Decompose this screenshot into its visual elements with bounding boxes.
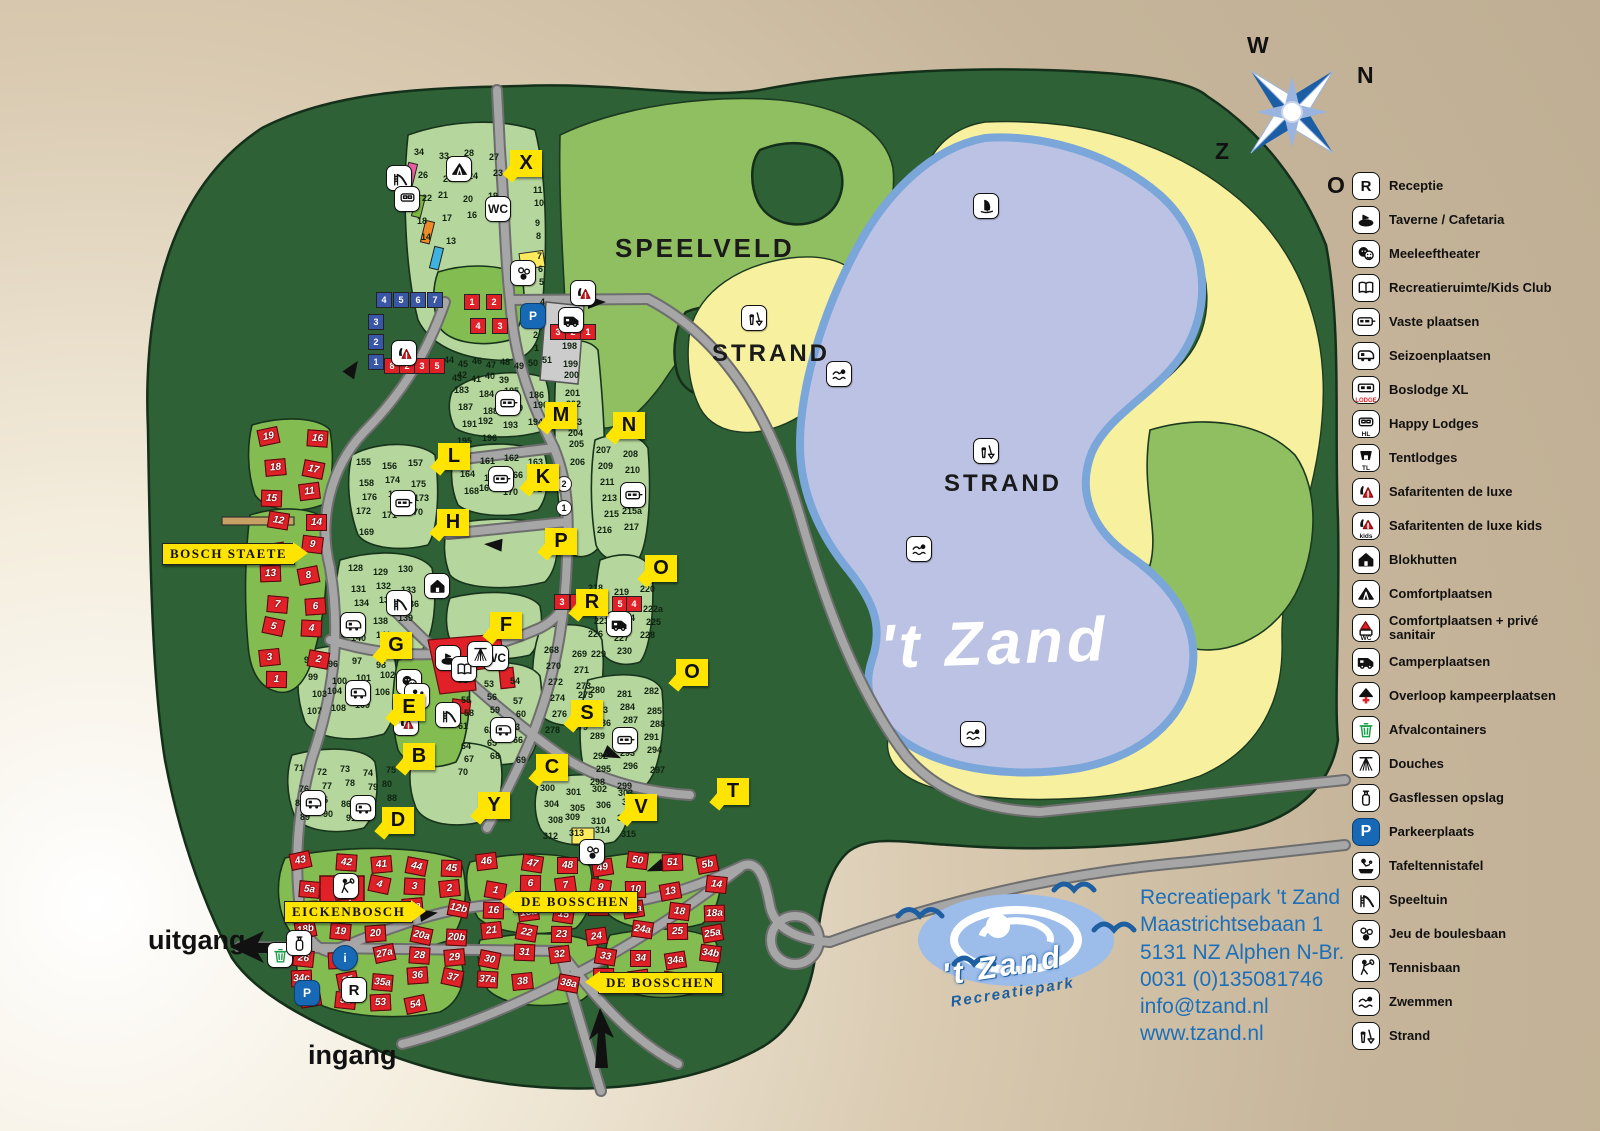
plot-number: 191 [462, 419, 477, 429]
plot-number: 10 [534, 198, 544, 208]
plot-number: 106 [375, 687, 390, 697]
plot-number: 169 [359, 527, 374, 537]
plot-number: 284 [620, 702, 635, 712]
area-sign: BOSCH STAETE [162, 543, 295, 565]
camperplaats-icon [606, 611, 632, 637]
legend-item: Zwemmen [1352, 988, 1597, 1016]
plot-number: 228 [640, 630, 655, 640]
plot-number: 17 [442, 213, 452, 223]
sign-arrow-icon [293, 542, 308, 564]
safaritent-icon [391, 340, 417, 366]
bungalow-plot: 23 [551, 926, 572, 943]
plot-number: 58 [464, 708, 474, 718]
bungalow-plot: 47 [521, 853, 544, 873]
boslodge-xl-icon: LODGE [1352, 376, 1380, 404]
bungalow-plot: 30 [478, 949, 502, 970]
contact-line: 0031 (0)135081746 [1140, 966, 1344, 993]
bungalow-plot: 4 [301, 619, 323, 637]
route-marker-m: M [545, 402, 577, 429]
vaste-plaatsen-icon [495, 390, 521, 416]
legend-icon-tag: LODGE [1353, 398, 1379, 404]
plot-number: 6 [538, 264, 543, 274]
plot-number: 97 [352, 656, 362, 666]
plot-number: 68 [490, 751, 500, 761]
windsurf-icon [973, 193, 999, 219]
legend-item: kidsSafaritenten de luxe kids [1352, 512, 1597, 540]
plot-number: 2 [533, 330, 538, 340]
mini-plot: 3 [368, 314, 384, 330]
bungalow-plot: 31 [514, 944, 536, 962]
plot-number: 184 [479, 389, 494, 399]
plot-number: 289 [590, 731, 605, 741]
plot-number: 173 [414, 493, 429, 503]
jeu-de-boules-icon [510, 260, 536, 286]
bungalow-plot: 5a [298, 880, 320, 899]
plot-number: 22 [422, 193, 432, 203]
plot-number: 44 [444, 355, 454, 365]
plot-number: 174 [385, 475, 400, 485]
afvalcontainer-icon [1352, 716, 1380, 744]
plot-number: 96 [328, 659, 338, 669]
compass-south: Z [1215, 138, 1229, 165]
route-marker-e: E [393, 694, 425, 721]
bungalow-plot: 20 [364, 924, 386, 942]
seizoenplaatsen-icon [300, 790, 326, 816]
bungalow-plot: 18 [264, 458, 286, 477]
plot-number: 208 [623, 449, 638, 459]
legend-item-label: Comfortplaatsen [1389, 587, 1492, 601]
plot-number: 272 [548, 677, 563, 687]
strand-icon [741, 305, 767, 331]
legend-item: Afvalcontainers [1352, 716, 1597, 744]
bungalow-plot: 13 [260, 565, 282, 583]
plot-number: 313 [569, 828, 584, 838]
plot-number: 57 [513, 696, 523, 706]
bungalow-plot: 27a [372, 943, 396, 964]
plot-number: 295 [596, 764, 611, 774]
zwemmen-icon [960, 721, 986, 747]
legend-item-label: Gasflessen opslag [1389, 791, 1504, 805]
bungalow-plot: 37a [477, 970, 499, 988]
plot-number: 187 [458, 402, 473, 412]
bungalow-plot: 6 [304, 597, 326, 615]
bungalow-plot: 4 [367, 874, 391, 895]
legend-item-label: Tafeltennistafel [1389, 859, 1483, 873]
plot-number: 225 [646, 617, 661, 627]
strand-icon [1352, 1022, 1380, 1050]
contact-line: 5131 NZ Alphen N-Br. [1140, 939, 1344, 966]
plot-number: 168 [464, 486, 479, 496]
legend-item-label: Strand [1389, 1029, 1430, 1043]
bungalow-plot: 25a [701, 923, 725, 943]
legend-item: Gasflessen opslag [1352, 784, 1597, 812]
legend-item: Blokhutten [1352, 546, 1597, 574]
plot-number: 278 [545, 725, 560, 735]
seizoenplaatsen-icon [490, 717, 516, 743]
area-sign-text: BOSCH STAETE [170, 546, 287, 561]
happy-lodges-icon: HL [1352, 410, 1380, 438]
bungalow-plot: 14 [306, 514, 327, 531]
vaste-plaatsen-icon [612, 727, 638, 753]
plot-number: 5 [539, 277, 544, 287]
plot-number: 60 [516, 709, 526, 719]
plot-number: 1 [534, 343, 539, 353]
plot-number: 53 [484, 679, 494, 689]
plot-number: 287 [623, 715, 638, 725]
mini-plot: 7 [427, 292, 443, 308]
legend-item-label: Recreatieruimte/Kids Club [1389, 281, 1552, 295]
plot-number: 226 [588, 629, 603, 639]
legend-item-label: Safaritenten de luxe [1389, 485, 1513, 499]
bungalow-plot: 20a [409, 925, 433, 946]
compass-north: N [1357, 62, 1374, 89]
legend-item: Douches [1352, 750, 1597, 778]
bungalow-plot: 44 [405, 856, 429, 877]
plot-number: 282 [644, 686, 659, 696]
bungalow-plot: 17 [302, 459, 326, 480]
plot-number: 213 [602, 493, 617, 503]
plot-number: 297 [650, 765, 665, 775]
route-marker-c: C [536, 754, 568, 781]
plot-number: 196 [482, 433, 497, 443]
bungalow-plot: 41 [370, 855, 392, 874]
legend-item: WCComfortplaatsen + privé sanitair [1352, 614, 1597, 642]
plot-number: 268 [544, 645, 559, 655]
entrance-label: ingang [308, 1040, 397, 1071]
bungalow-plot: 25 [667, 923, 688, 940]
reception-icon: R [341, 977, 367, 1003]
plot-number: 20 [463, 194, 473, 204]
plot-number: 198 [562, 341, 577, 351]
plot-number: 104 [327, 686, 342, 696]
jeu-de-boules-icon [1352, 920, 1380, 948]
bungalow-plot: 14 [705, 875, 728, 894]
bungalow-plot: 36 [406, 966, 428, 984]
plot-number: 55 [461, 695, 471, 705]
plot-number: 131 [351, 584, 366, 594]
bungalow-plot: 34 [630, 950, 651, 967]
strand-west-label: STRAND [712, 340, 830, 368]
legend-icon-tag: TL [1353, 466, 1379, 473]
plot-number: 201 [565, 388, 580, 398]
park-map-page: { "page_title": "Plattegrond Recreatiepa… [0, 0, 1600, 1131]
plot-number: 46 [472, 356, 482, 366]
plot-number: 71 [294, 763, 304, 773]
plot-number: 14 [421, 232, 431, 242]
legend-item: Jeu de boulesbaan [1352, 920, 1597, 948]
bungalow-plot: 54 [403, 994, 427, 1015]
plot-number: 315 [621, 829, 636, 839]
plot-number: 23 [493, 168, 503, 178]
bungalow-plot: 38a [557, 973, 581, 993]
legend-item: RReceptie [1352, 172, 1597, 200]
plot-number: 269 [572, 649, 587, 659]
plot-number: 230 [617, 646, 632, 656]
plot-number: 288 [650, 719, 665, 729]
tentlodges-icon: TL [1352, 444, 1380, 472]
plot-number: 79 [368, 782, 378, 792]
plot-number: 48 [500, 357, 510, 367]
legend-icon-tag: HL [1353, 432, 1379, 439]
area-sign-text: DE BOSSCHEN [521, 894, 630, 909]
bungalow-plot: 43 [288, 850, 312, 871]
plot-number: 211 [600, 477, 615, 487]
plot-number: 199 [563, 359, 578, 369]
reception-icon: R [1352, 172, 1380, 200]
compass-east: O [1327, 172, 1345, 199]
bungalow-plot: 50 [626, 851, 649, 870]
bungalow-plot: 24 [585, 927, 608, 947]
plot-number: 280 [590, 685, 605, 695]
legend-item: HLHappy Lodges [1352, 410, 1597, 438]
bungalow-plot: 2 [307, 649, 331, 669]
comfortplaats-icon [446, 156, 472, 182]
mini-plot: 4 [626, 596, 642, 612]
plot-number: 138 [373, 616, 388, 626]
vaste-plaatsen-icon [390, 490, 416, 516]
speeltuin-icon [1352, 886, 1380, 914]
plot-number: 50 [528, 358, 538, 368]
legend-icon-tag: kids [1353, 534, 1379, 541]
speelveld-label: SPEELVELD [615, 233, 795, 264]
strand-icon [973, 438, 999, 464]
legend-item-label: Tennisbaan [1389, 961, 1460, 975]
bungalow-plot: 38 [511, 972, 534, 991]
bungalow-plot: 45 [441, 860, 463, 878]
plot-number: 11 [533, 185, 543, 195]
plot-number: 172 [356, 506, 371, 516]
mini-plot: 1 [368, 354, 384, 370]
legend-item: Comfortplaatsen [1352, 580, 1597, 608]
plot-number: 192 [478, 416, 493, 426]
plot-number: 70 [458, 767, 468, 777]
plot-number: 40 [485, 371, 495, 381]
plot-number: 47 [486, 360, 496, 370]
douche-icon [467, 641, 493, 667]
legend-item-label: Vaste plaatsen [1389, 315, 1479, 329]
plot-number: 314 [595, 825, 610, 835]
speeltuin-icon [386, 590, 412, 616]
bungalow-plot: 18 [668, 902, 691, 921]
area-sign-text: DE BOSSCHEN [606, 975, 715, 990]
plot-number: 49 [514, 361, 524, 371]
safaritent-icon [1352, 478, 1380, 506]
plot-number: 134 [354, 598, 369, 608]
parkeer-icon: P [1352, 818, 1380, 846]
safaritent-kids-icon: kids [1352, 512, 1380, 540]
route-marker-b: B [403, 743, 435, 770]
plot-number: 56 [487, 692, 497, 702]
legend-item: Overloop kampeerplaatsen [1352, 682, 1597, 710]
plot-number: 157 [408, 458, 423, 468]
jeu-de-boules-icon [579, 839, 605, 865]
bungalow-plot: 19 [329, 922, 351, 941]
route-marker-d: D [382, 807, 414, 834]
plot-number: 161 [480, 456, 495, 466]
route-marker-o: O [676, 659, 708, 686]
bungalow-plot: 35a [371, 973, 393, 992]
exit-label: uitgang [148, 925, 245, 956]
parkeer-icon: P [294, 980, 320, 1006]
plot-number: 129 [373, 567, 388, 577]
mini-plot: 1 [464, 294, 480, 310]
seizoenplaatsen-icon [345, 680, 371, 706]
legend-item-label: Taverne / Cafetaria [1389, 213, 1504, 227]
route-marker-s: S [571, 700, 603, 727]
plot-number: 41 [471, 374, 481, 384]
strand-east-label: STRAND [944, 470, 1062, 498]
plot-number: 205 [569, 439, 584, 449]
camperplaats-icon [558, 307, 584, 333]
bungalow-plot: 34b [699, 944, 722, 963]
plot-number: 108 [331, 703, 346, 713]
plot-number: 27 [489, 152, 499, 162]
bungalow-plot: 34a [664, 950, 687, 970]
plot-number: 285 [647, 706, 662, 716]
bungalow-plot: 42 [335, 853, 357, 871]
plot-number: 175 [411, 479, 426, 489]
safaritent-icon [570, 280, 596, 306]
legend-item-label: Comfortplaatsen + privé sanitair [1389, 614, 1559, 641]
legend-item: Seizoenplaatsen [1352, 342, 1597, 370]
plot-number: 13 [446, 236, 456, 246]
plot-number: 132 [376, 581, 391, 591]
bungalow-plot: 13 [659, 881, 683, 901]
plot-number: 301 [566, 787, 581, 797]
plot-number: 54 [510, 676, 520, 686]
legend-item-label: Blokhutten [1389, 553, 1457, 567]
tafeltennis-icon [1352, 852, 1380, 880]
legend-item: Safaritenten de luxe [1352, 478, 1597, 506]
mini-plot: 4 [470, 318, 486, 334]
tennisbaan-icon [333, 873, 359, 899]
plot-number: 155 [356, 457, 371, 467]
plot-number: 67 [464, 754, 474, 764]
plot-number: 158 [359, 478, 374, 488]
plot-number: 312 [543, 831, 558, 841]
sign-arrow-icon [585, 971, 600, 993]
bungalow-plot: 7 [266, 595, 288, 614]
plot-number: 204 [568, 428, 583, 438]
plot-number: 7 [537, 251, 542, 261]
gasflessen-icon [286, 930, 312, 956]
plot-number: 162 [504, 453, 519, 463]
legend-icon-tag: WC [1353, 636, 1379, 643]
seizoenplaatsen-icon [1352, 342, 1380, 370]
vaste-plaatsen-icon [1352, 308, 1380, 336]
plot-number: 291 [644, 732, 659, 742]
plot-number: 64 [461, 741, 471, 751]
plot-number: 156 [382, 461, 397, 471]
comfortplaats-icon [1352, 580, 1380, 608]
plot-number: 99 [308, 672, 318, 682]
plot-number: 59 [490, 705, 500, 715]
legend-item-label: Meeleeftheater [1389, 247, 1480, 261]
plot-number: 222a [643, 604, 663, 614]
comfortplaats-sanitair-icon: WC [1352, 614, 1380, 642]
bungalow-plot: 46 [475, 852, 498, 871]
plot-number: 229 [591, 649, 606, 659]
legend-item-label: Speeltuin [1389, 893, 1448, 907]
plot-number: 274 [550, 693, 565, 703]
plot-number: 206 [570, 457, 585, 467]
bungalow-plot: 22 [515, 922, 539, 942]
area-sign-text: EICKENBOSCH [292, 904, 405, 919]
mini-plot: 2 [486, 294, 502, 310]
plot-number: 271 [574, 665, 589, 675]
plot-number: 16 [467, 210, 477, 220]
plot-number: 306 [596, 800, 611, 810]
park-logo: 't Zand Recreatiepark [858, 868, 1158, 1038]
route-marker-n: N [613, 412, 645, 439]
contact-line: Recreatiepark 't Zand [1140, 884, 1344, 911]
mini-plot: 2 [368, 334, 384, 350]
bungalow-plot: 8 [297, 565, 321, 586]
plot-number: 217 [624, 522, 639, 532]
blokhut-icon [424, 573, 450, 599]
plot-number: 308 [548, 815, 563, 825]
bungalow-plot: 28 [408, 946, 430, 964]
plot-number: 210 [625, 465, 640, 475]
sign-arrow-icon [411, 900, 426, 922]
route-marker-y: Y [478, 792, 510, 819]
legend-item-label: Seizoenplaatsen [1389, 349, 1491, 363]
plot-number: 300 [540, 783, 555, 793]
plot-number: 186 [529, 390, 544, 400]
plot-number: 34 [414, 147, 424, 157]
compass-west: W [1247, 32, 1269, 59]
legend-item-label: Jeu de boulesbaan [1389, 927, 1506, 941]
plot-number: 193 [503, 420, 518, 430]
bungalow-plot: 1 [266, 671, 287, 688]
mini-plot: 3 [554, 594, 570, 610]
route-marker-r: R [576, 589, 608, 616]
legend-item: Meeleeftheater [1352, 240, 1597, 268]
area-sign: DE BOSSCHEN [598, 972, 723, 994]
sign-arrow-icon [500, 890, 515, 912]
theater-icon [1352, 240, 1380, 268]
legend-item-label: Happy Lodges [1389, 417, 1479, 431]
bungalow-plot: 20b [446, 928, 468, 946]
bungalow-plot: 19 [256, 426, 280, 447]
plot-number: 130 [398, 564, 413, 574]
legend-item: Tafeltennistafel [1352, 852, 1597, 880]
bungalow-plot: 37 [440, 967, 464, 988]
plot-number: 215 [604, 509, 619, 519]
happy-lodges-icon [394, 186, 420, 212]
taverne-icon [1352, 206, 1380, 234]
plot-number: 200 [564, 370, 579, 380]
legend-item-label: Boslodge XL [1389, 383, 1468, 397]
legend-item-label: Overloop kampeerplaatsen [1389, 689, 1556, 703]
route-marker-p: P [545, 528, 577, 555]
bungalow-plot: 21 [480, 921, 503, 940]
bungalow-plot: 12b [447, 898, 471, 919]
plot-number: 176 [362, 492, 377, 502]
info-icon: i [332, 945, 358, 971]
plot-number: 309 [565, 812, 580, 822]
vaste-plaatsen-icon [488, 466, 514, 492]
blokhut-icon [1352, 546, 1380, 574]
plot-number: 78 [345, 778, 355, 788]
legend-item: Vaste plaatsen [1352, 308, 1597, 336]
plot-number: 9 [535, 218, 540, 228]
plot-number: 73 [340, 764, 350, 774]
legend-item-label: Tentlodges [1389, 451, 1457, 465]
legend-item-label: Safaritenten de luxe kids [1389, 519, 1542, 533]
contact-block: Recreatiepark 't ZandMaastrichtsebaan 15… [1140, 884, 1344, 1048]
plot-number: 42 [457, 370, 467, 380]
